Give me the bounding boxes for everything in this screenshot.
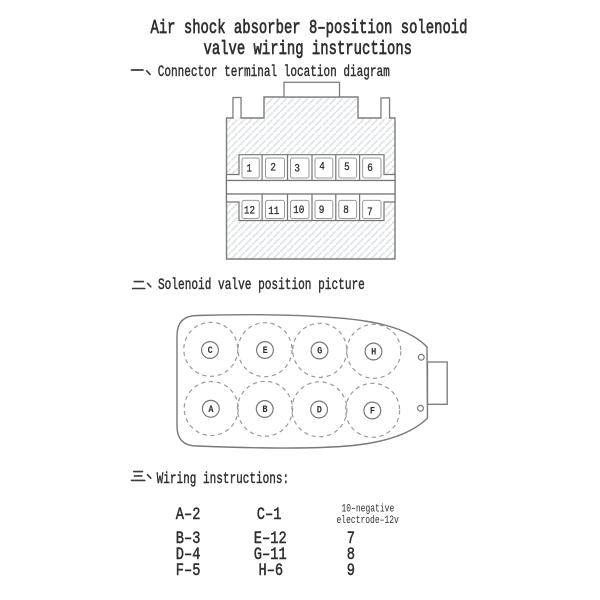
svg-text:Connector terminal location di: Connector terminal location diagram — [158, 64, 390, 81]
svg-text:electrode–12v: electrode–12v — [337, 514, 399, 527]
svg-text:F–5: F–5 — [176, 560, 201, 580]
svg-text:1: 1 — [246, 163, 252, 176]
svg-text:11: 11 — [268, 205, 279, 218]
svg-text:2: 2 — [270, 162, 276, 175]
svg-text:9: 9 — [319, 204, 325, 217]
svg-text:B: B — [262, 403, 268, 415]
svg-text:Air shock absorber 8–position: Air shock absorber 8–position solenoid — [151, 18, 468, 40]
svg-text:C: C — [208, 344, 214, 356]
svg-text:3: 3 — [294, 163, 300, 176]
svg-text:C–1: C–1 — [257, 504, 282, 524]
svg-text:8: 8 — [343, 204, 349, 217]
svg-text:5: 5 — [344, 161, 350, 174]
svg-text:H: H — [371, 346, 376, 358]
svg-text:12: 12 — [244, 205, 255, 218]
svg-text:A–2: A–2 — [176, 504, 201, 524]
svg-text:4: 4 — [319, 161, 325, 174]
svg-text:H–6: H–6 — [259, 560, 284, 580]
svg-text:7: 7 — [367, 206, 373, 219]
svg-text:6: 6 — [367, 162, 373, 175]
svg-text:valve wiring instructions: valve wiring instructions — [204, 39, 413, 61]
svg-text:E: E — [263, 344, 269, 356]
svg-text:A: A — [208, 403, 214, 415]
svg-text:Wiring instructions:: Wiring instructions: — [157, 471, 290, 488]
svg-text:9: 9 — [347, 560, 355, 580]
svg-text:10: 10 — [293, 204, 304, 217]
svg-text:Solenoid valve position pictur: Solenoid valve position picture — [158, 276, 365, 295]
svg-text:D: D — [317, 404, 323, 416]
svg-text:F: F — [370, 405, 375, 417]
svg-text:G: G — [317, 345, 323, 357]
